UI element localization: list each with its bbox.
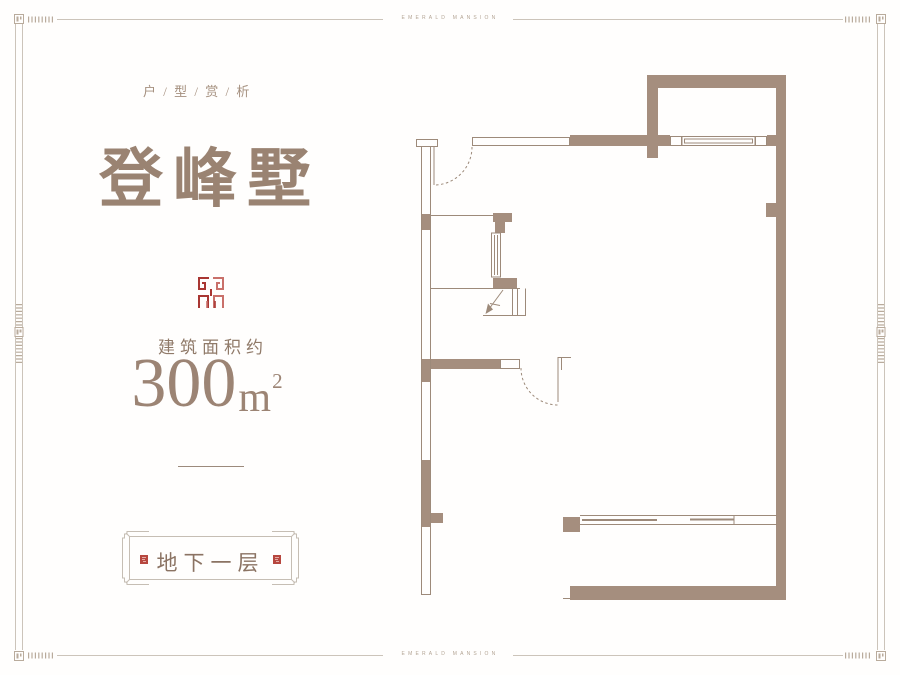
area-unit: m xyxy=(238,377,271,419)
category-line: 户 / 型 / 赏 / 析 xyxy=(143,81,403,100)
seal-logo-icon xyxy=(196,276,226,309)
floor-plan xyxy=(400,60,800,620)
area-exponent: 2 xyxy=(272,371,283,392)
floor-plaque: 地下一层 xyxy=(121,530,300,586)
page-title: 登峰墅 xyxy=(99,146,359,213)
area-number: 300 xyxy=(131,349,236,419)
floor-plan-walls xyxy=(421,75,786,600)
floor-plaque-label: 地下一层 xyxy=(121,547,300,577)
divider-line xyxy=(178,466,244,467)
area-value: 300m2 xyxy=(107,351,307,419)
border-caption-top: EMERALD MANSION xyxy=(0,15,900,21)
border-caption-bottom: EMERALD MANSION xyxy=(0,651,900,657)
stairs-down-arrow xyxy=(431,289,526,316)
